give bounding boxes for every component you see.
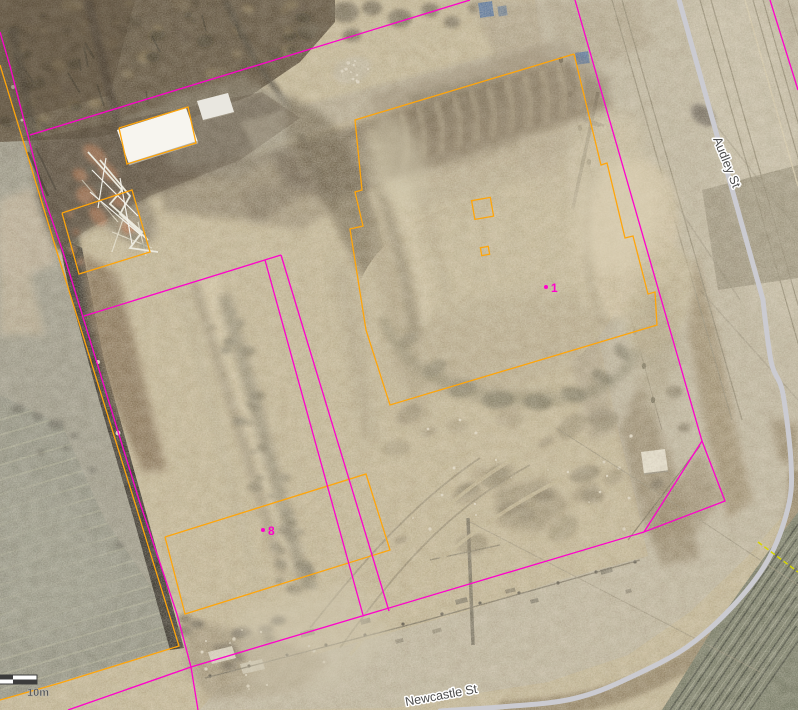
svg-text:8: 8 (268, 524, 275, 538)
svg-text:1: 1 (551, 281, 558, 295)
svg-text:10m: 10m (27, 687, 49, 699)
